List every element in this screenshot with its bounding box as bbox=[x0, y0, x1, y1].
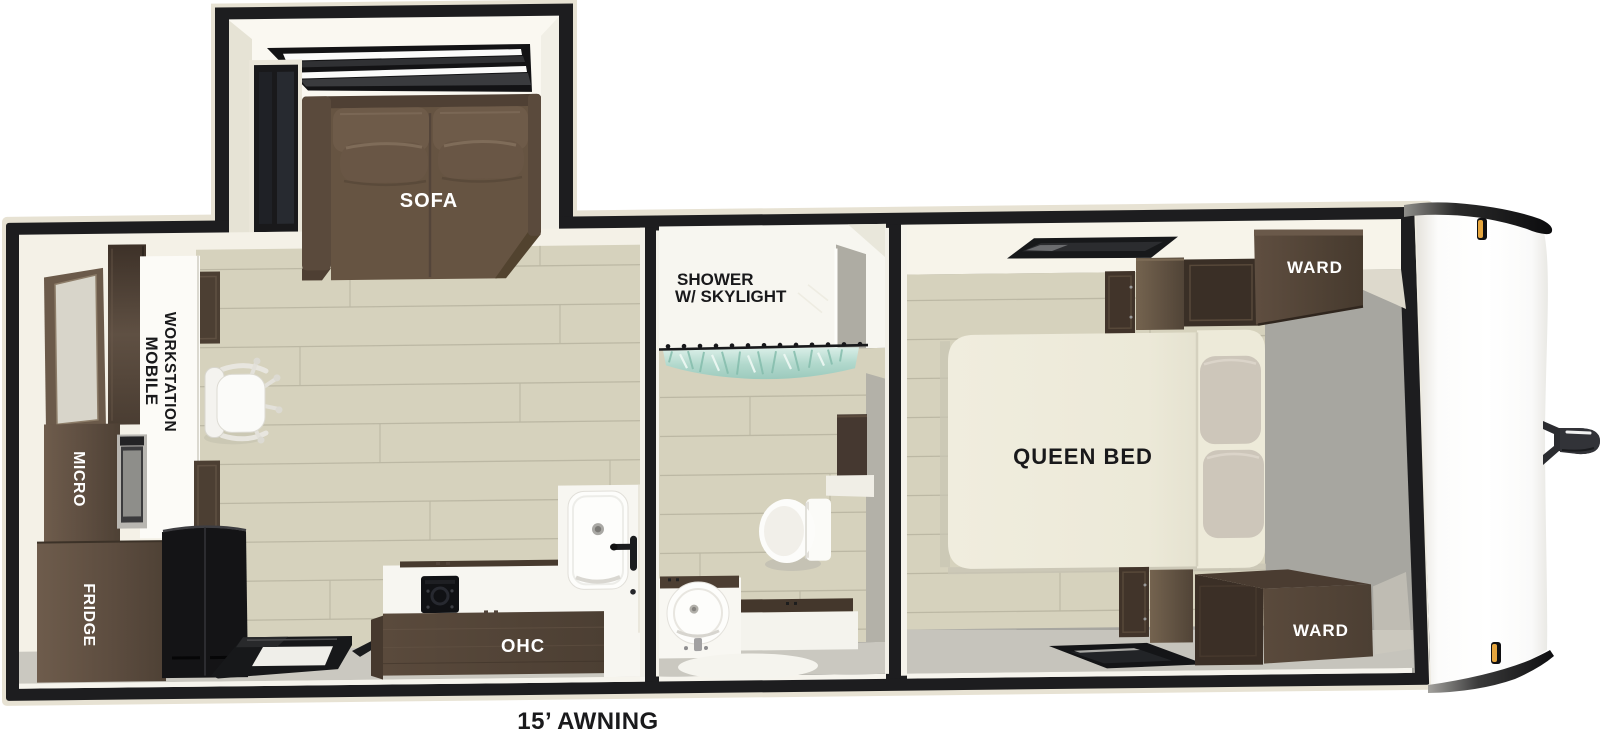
svg-text:OHC: OHC bbox=[501, 635, 545, 656]
svg-text:QUEEN BED: QUEEN BED bbox=[1013, 444, 1153, 469]
svg-text:WARD: WARD bbox=[1287, 258, 1343, 277]
svg-text:SOFA: SOFA bbox=[400, 190, 458, 212]
svg-text:WARD: WARD bbox=[1293, 621, 1349, 640]
svg-text:MICRO: MICRO bbox=[70, 451, 87, 507]
svg-text:MOBILE: MOBILE bbox=[142, 336, 161, 405]
svg-text:WORKSTATION: WORKSTATION bbox=[161, 312, 178, 432]
svg-text:W/ SKYLIGHT: W/ SKYLIGHT bbox=[675, 287, 787, 306]
svg-text:FRIDGE: FRIDGE bbox=[80, 583, 97, 646]
svg-text:15’ AWNING: 15’ AWNING bbox=[517, 708, 658, 731]
